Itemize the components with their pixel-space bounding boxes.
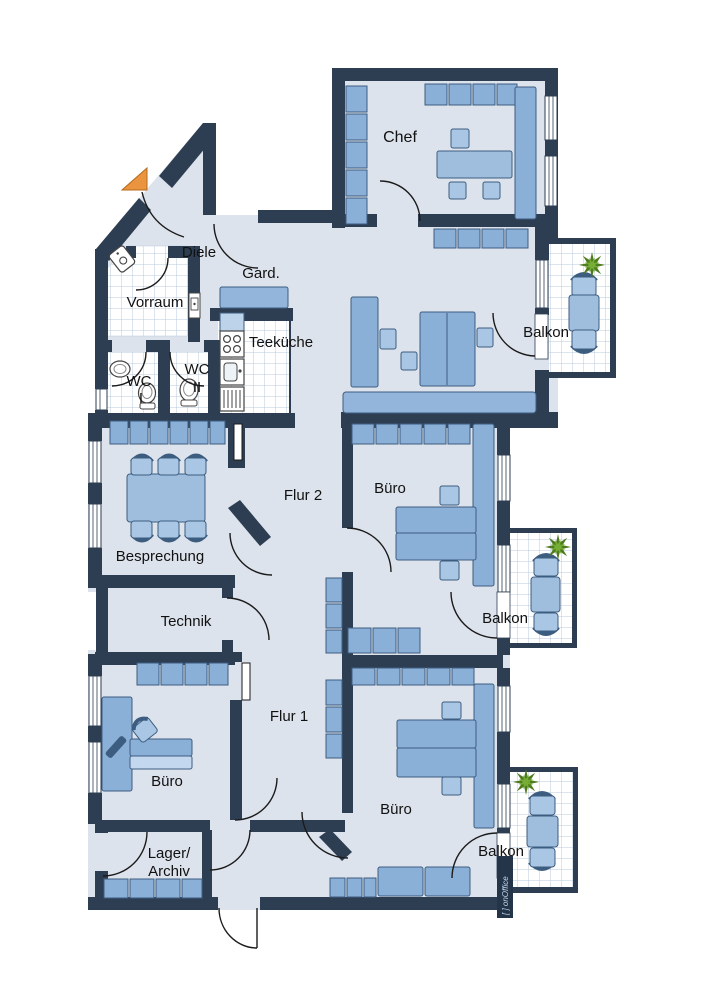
room-label-chef: Chef (383, 129, 417, 146)
window-icon (545, 96, 557, 140)
floor-plan: Chef Diele Gard. Vorraum Teeküche WC I W… (0, 0, 706, 1000)
door-arc (219, 908, 257, 948)
plant-icon (513, 769, 539, 795)
window-icon (545, 156, 557, 206)
chair (534, 558, 558, 576)
chair (440, 486, 459, 505)
chair (185, 521, 206, 538)
window-icon (89, 441, 101, 483)
chair (185, 458, 206, 475)
window-icon (89, 742, 101, 793)
balcony3-furniture (527, 794, 558, 869)
room-label-balkon-top: Balkon (523, 324, 569, 341)
desk-return (130, 756, 192, 769)
sideboard (474, 684, 494, 828)
wall-fixture-icon (189, 293, 200, 318)
room-label-wc1-line2: I (139, 390, 143, 407)
table (569, 295, 599, 331)
desk (396, 533, 476, 560)
chair (483, 182, 500, 199)
window-icon (89, 504, 101, 548)
kitchen-cabinet (220, 313, 244, 331)
chair (530, 796, 555, 815)
room-label-flur2: Flur 2 (284, 487, 322, 504)
credenza (343, 392, 536, 413)
room-label-gard: Gard. (242, 265, 280, 282)
room-label-diele: Diele (182, 244, 216, 261)
desk (130, 739, 192, 756)
sink-icon (220, 359, 244, 385)
watermark: [ ] onOffice (497, 856, 513, 918)
desk (397, 748, 476, 777)
window-icon (498, 455, 510, 501)
room-label-wc2: WC (185, 361, 210, 378)
door-leaf (234, 424, 242, 460)
sideboard (473, 424, 494, 586)
chair (449, 182, 466, 199)
chair (442, 702, 461, 719)
table (531, 577, 560, 612)
chair (158, 521, 179, 538)
room-label-buero-bottom: Büro (380, 801, 412, 818)
chair (572, 330, 596, 349)
entrance-marker-icon (122, 168, 147, 190)
window-icon (498, 545, 510, 592)
lager-cabinets (104, 879, 202, 898)
room-label-buero-left: Büro (151, 773, 183, 790)
room-label-lager-line2: Archiv (148, 863, 190, 880)
kitchen-shelf-icon (220, 387, 244, 411)
room-label-flur1: Flur 1 (270, 708, 308, 725)
room-label-vorraum: Vorraum (127, 294, 184, 311)
chair (401, 352, 417, 370)
stove-icon (220, 331, 244, 357)
room-label-balkon-mid: Balkon (482, 610, 528, 627)
window-icon (96, 389, 107, 410)
window-icon (536, 260, 548, 308)
watermark-text: [ ] onOffice (501, 876, 510, 916)
window-icon (498, 686, 510, 732)
room-label-teekueche: Teeküche (249, 334, 313, 351)
chair (477, 328, 493, 347)
room-label-wc2-line2: II (193, 379, 201, 396)
floor-plan-canvas: Chef Diele Gard. Vorraum Teeküche WC I W… (0, 0, 706, 1000)
chair (442, 777, 461, 795)
room-label-besprechung: Besprechung (116, 548, 204, 565)
chair (380, 329, 396, 349)
meeting-table (127, 474, 205, 522)
desk (351, 297, 378, 387)
balcony1-furniture (569, 275, 599, 352)
room-label-wc1: WC (127, 373, 152, 390)
wardrobe (220, 287, 288, 308)
table (527, 816, 558, 847)
chair (572, 277, 596, 296)
desk (396, 507, 476, 533)
room-label-technik: Technik (161, 613, 212, 630)
balcony2-furniture (531, 556, 560, 634)
chair (131, 458, 152, 475)
chair (131, 521, 152, 538)
room-label-buero-mid: Büro (374, 480, 406, 497)
chair (534, 613, 558, 631)
chair (451, 129, 469, 148)
chair (158, 458, 179, 475)
desk (397, 720, 476, 748)
window-icon (498, 784, 510, 828)
chair (530, 848, 555, 867)
chair (440, 561, 459, 580)
plant-icon (545, 534, 571, 560)
plant-icon (579, 252, 605, 278)
window-icon (89, 676, 101, 726)
desk (437, 151, 512, 178)
door-leaf (242, 663, 250, 700)
sideboard (515, 87, 536, 219)
room-label-lager: Lager/ (148, 845, 191, 862)
